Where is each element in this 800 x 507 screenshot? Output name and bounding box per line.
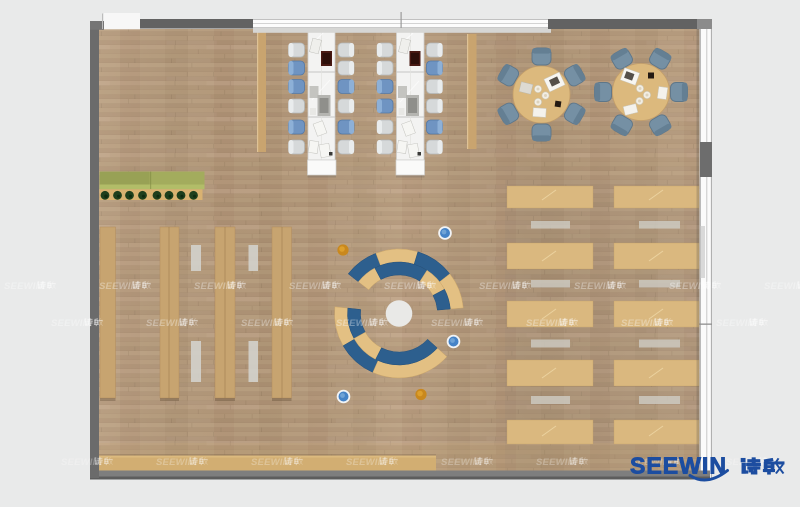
svg-text:SEEWIN: SEEWIN: [630, 453, 727, 479]
